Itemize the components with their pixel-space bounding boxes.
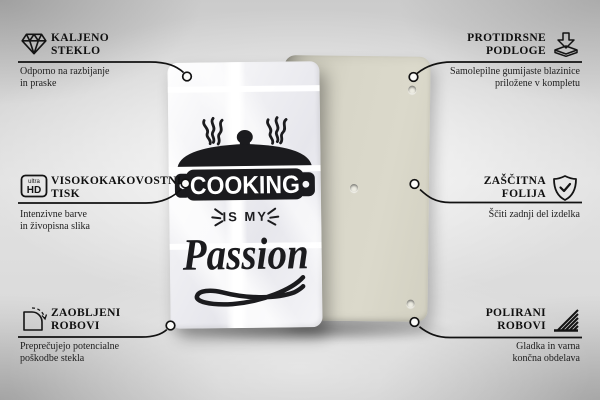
feature-title: ZAŠČITNA FOLIJA <box>390 175 546 206</box>
feature-description: Intenzivne barve in živopisna slika <box>20 209 190 232</box>
feature-title: VISOKOKAKOVOSTNI TISK <box>51 175 190 206</box>
feature-title-line: PODLOGE <box>390 45 546 58</box>
feature-title-line: STEKLO <box>51 45 190 58</box>
shield-check-icon <box>552 174 580 202</box>
feature-desc-line: Intenzivne barve <box>20 209 190 221</box>
feature-desc-line: poškodbe stekla <box>20 353 190 365</box>
feature-description: Odporno na razbijanje in praske <box>20 66 190 89</box>
feature-title-line: ZAŠČITNA <box>390 175 546 188</box>
feature-desc-line: Ščiti zadnji del izdelka <box>390 209 580 221</box>
feature-title: PROTIDRSNE PODLOGE <box>390 32 546 63</box>
feature-polished-edges: POLIRANI ROBOVI Gladka in varna končna o… <box>390 305 580 364</box>
feature-desc-line: Odporno na razbijanje <box>20 66 190 78</box>
feature-desc-line: Preprečujejo potencialne <box>20 341 190 353</box>
feature-title: ZAOBLJENI ROBOVI <box>51 307 190 338</box>
flourish-swash <box>197 277 304 304</box>
product-showcase: COOKING IS MY Passion <box>0 0 600 400</box>
feature-title-line: VISOKOKAKOVOSTNI <box>51 175 190 188</box>
feature-desc-line: in praske <box>20 78 190 90</box>
artwork-word-cooking: COOKING <box>190 171 300 200</box>
feature-title-line: FOLIJA <box>390 188 546 201</box>
ultra-hd-icon: ultra HD <box>20 174 48 202</box>
hatched-edge-icon <box>552 306 580 334</box>
hd-label: HD <box>27 185 41 196</box>
feature-description: Ščiti zadnji del izdelka <box>390 209 580 221</box>
feature-desc-line: končna obdelava <box>390 353 580 365</box>
feature-title-line: ZAOBLJENI <box>51 307 190 320</box>
feature-title-line: KALJENO <box>51 32 190 45</box>
feature-description: Preprečujejo potencialne poškodbe stekla <box>20 341 190 364</box>
diamond-icon <box>20 31 48 59</box>
mounting-hole <box>350 184 358 192</box>
feature-anti-slip-pads: PROTIDRSNE PODLOGE Samolepilne gumijaste… <box>390 30 580 89</box>
feature-desc-line: priložene v kompletu <box>390 78 580 90</box>
feature-protective-film: ZAŠČITNA FOLIJA Ščiti zadnji del izdelka <box>390 173 580 221</box>
feature-title-line: PROTIDRSNE <box>390 32 546 45</box>
pads-arrow-icon <box>552 31 580 59</box>
feature-title-line: POLIRANI <box>390 307 546 320</box>
feature-title-line: ROBOVI <box>390 320 546 333</box>
feature-desc-line: Samolepilne gumijaste blazinice <box>390 66 580 78</box>
artwork-word-passion: Passion <box>182 228 309 280</box>
feature-tempered-glass: KALJENO STEKLO Odporno na razbijanje in … <box>20 30 190 89</box>
feature-description: Gladka in varna končna obdelava <box>390 341 580 364</box>
feature-rounded-corners: ZAOBLJENI ROBOVI Preprečujejo potencialn… <box>20 305 190 364</box>
feature-title: KALJENO STEKLO <box>51 32 190 63</box>
feature-title-line: TISK <box>51 188 190 201</box>
glass-board-front: COOKING IS MY Passion <box>167 61 322 329</box>
feature-desc-line: Gladka in varna <box>390 341 580 353</box>
rounded-corner-icon <box>20 306 48 334</box>
feature-description: Samolepilne gumijaste blazinice priložen… <box>390 66 580 89</box>
artwork-word-ismy: IS MY <box>222 209 268 225</box>
feature-title: POLIRANI ROBOVI <box>390 307 546 338</box>
cooking-passion-artwork: COOKING IS MY Passion <box>167 61 322 329</box>
feature-desc-line: in živopisna slika <box>20 221 190 233</box>
feature-high-quality-print: ultra HD VISOKOKAKOVOSTNI TISK Intenzivn… <box>20 173 190 232</box>
feature-title-line: ROBOVI <box>51 320 190 333</box>
